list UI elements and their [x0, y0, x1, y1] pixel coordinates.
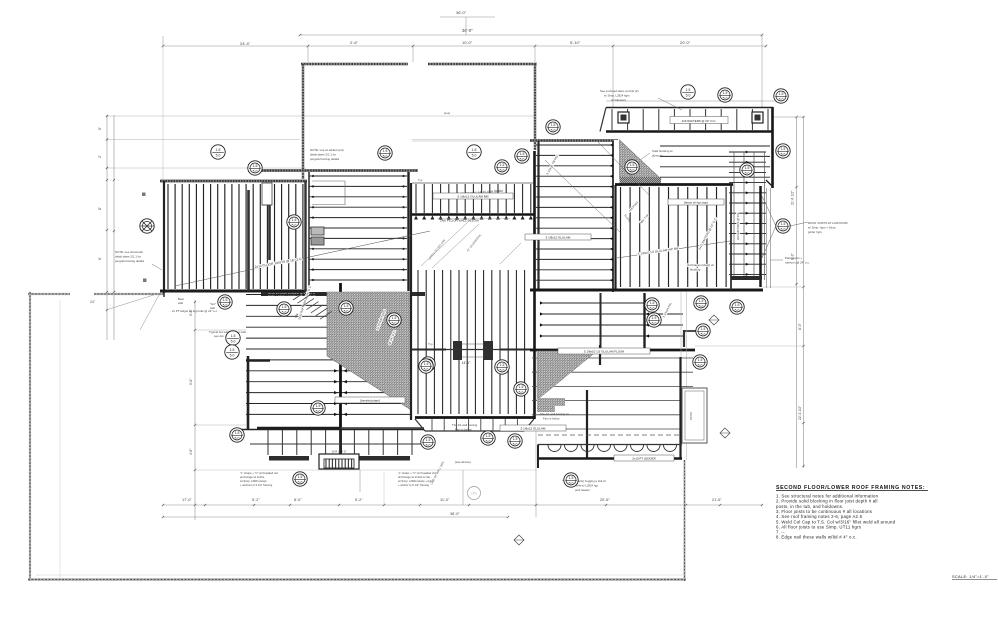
- svg-text:5.0: 5.0: [316, 410, 321, 414]
- svg-text:5.0: 5.0: [513, 443, 518, 447]
- svg-text:5'-10": 5'-10": [570, 40, 581, 45]
- svg-text:5.0: 5.0: [282, 311, 287, 315]
- svg-text:6. All floor joists to use Sim: 6. All floor joists to use Simp. UT11 hg…: [776, 524, 861, 529]
- svg-text:1.5: 1.5: [230, 348, 235, 352]
- svg-text:8': 8': [98, 207, 102, 210]
- svg-text:1.5: 1.5: [701, 327, 706, 331]
- svg-text:1.5: 1.5: [745, 166, 750, 170]
- svg-text:14'-1": 14'-1": [462, 361, 471, 365]
- svg-text:1.5: 1.5: [630, 163, 635, 167]
- svg-text:w/ Simp. L2824 straps + hgrs: w/ Simp. L2824 straps + hgrs: [398, 479, 434, 483]
- svg-text:"L" straps + "C" w/ threaded r: "L" straps + "C" w/ threaded rod: [398, 471, 436, 475]
- svg-text:21'-6 1/2": 21'-6 1/2": [791, 190, 795, 205]
- svg-text:post header: post header: [575, 488, 590, 492]
- svg-text:1.5: 1.5: [551, 123, 556, 127]
- svg-text:1.5: 1.5: [723, 91, 728, 95]
- svg-text:1.5: 1.5: [472, 148, 477, 152]
- svg-text:1.5: 1.5: [223, 298, 228, 302]
- svg-text:+ anchor to 5 1/2" framing: + anchor to 5 1/2" framing: [398, 483, 429, 487]
- svg-text:5 1/8x12 GLULAM: 5 1/8x12 GLULAM: [521, 427, 546, 431]
- svg-text:4'-6": 4'-6": [189, 448, 193, 455]
- svg-text:16 R @ 7.5": 16 R @ 7.5": [331, 450, 346, 454]
- svg-text:24": 24": [90, 300, 96, 304]
- svg-text:5.0: 5.0: [652, 322, 657, 326]
- svg-text:2x6 RAFTERS @ 24" O.C.: 2x6 RAFTERS @ 24" O.C.: [682, 119, 717, 123]
- svg-text:pergola framing details: pergola framing details: [115, 259, 145, 263]
- svg-text:(??): (??): [471, 492, 476, 496]
- svg-text:36'-0": 36'-0": [456, 10, 467, 15]
- svg-text:5.0: 5.0: [698, 364, 703, 368]
- svg-text:5 1/8x12 GLULAM BM: 5 1/8x12 GLULAM BM: [458, 195, 489, 199]
- svg-text:5.0: 5.0: [745, 172, 750, 176]
- svg-text:ROOF JOISTS AT LOW ROOF: ROOF JOISTS AT LOW ROOF: [808, 221, 848, 225]
- svg-text:21'-6": 21'-6": [712, 498, 722, 502]
- svg-text:5.0: 5.0: [520, 158, 525, 162]
- svg-text:5.0: 5.0: [500, 369, 505, 373]
- svg-text:5': 5': [98, 127, 102, 130]
- svg-text:36'-0": 36'-0": [462, 28, 473, 33]
- svg-text:1.5: 1.5: [500, 163, 505, 167]
- svg-text:Fam is below: Fam is below: [543, 417, 560, 421]
- svg-text:1.5: 1.5: [383, 149, 388, 153]
- svg-text:w/ Simp. L2824 hgrs: w/ Simp. L2824 hgrs: [604, 94, 630, 98]
- svg-text:5.0: 5.0: [424, 368, 429, 372]
- svg-text:9'-8": 9'-8": [189, 378, 193, 385]
- svg-text:[beveled plate]: [beveled plate]: [360, 399, 380, 403]
- svg-text:1.5: 1.5: [513, 437, 518, 441]
- svg-text:1.5: 1.5: [235, 431, 240, 435]
- svg-text:NOTE: use w/ added (out): NOTE: use w/ added (out): [310, 148, 344, 152]
- svg-text:w/ Simp. hgrs + Simp.: w/ Simp. hgrs + Simp.: [808, 226, 836, 230]
- svg-text:detail plans 2/1.1 for: detail plans 2/1.1 for: [310, 153, 336, 157]
- svg-text:17'-0": 17'-0": [182, 498, 192, 502]
- svg-text:blocking: blocking: [690, 268, 701, 272]
- svg-text:1.5: 1.5: [650, 301, 655, 305]
- svg-text:Patio doors +: Patio doors +: [785, 256, 802, 260]
- svg-text:5.0: 5.0: [292, 224, 297, 228]
- svg-text:5.0: 5.0: [472, 154, 477, 158]
- svg-text:Typ.: Typ.: [428, 342, 434, 346]
- svg-text:Typ.: Typ.: [418, 178, 423, 182]
- svg-text:5.0: 5.0: [216, 154, 221, 158]
- svg-text:8'-3": 8'-3": [798, 322, 802, 330]
- svg-text:5.0: 5.0: [253, 170, 258, 174]
- svg-text:5.0: 5.0: [519, 391, 524, 395]
- svg-text:10'-0": 10'-0": [462, 40, 473, 45]
- svg-text:1.5: 1.5: [520, 152, 525, 156]
- svg-text:5.0: 5.0: [686, 94, 691, 98]
- svg-text:3x4 braces (shear) w/: 3x4 braces (shear) w/: [687, 263, 714, 267]
- svg-text:24'-4": 24'-4": [240, 41, 251, 46]
- svg-text:1.5: 1.5: [779, 92, 784, 96]
- svg-text:5.0: 5.0: [298, 481, 303, 485]
- svg-text:1.5: 1.5: [292, 218, 297, 222]
- svg-text:anchorage w/ 2x10s w/ det.,: anchorage w/ 2x10s w/ det.,: [398, 475, 432, 479]
- svg-text:5.0: 5.0: [569, 482, 574, 486]
- svg-text:1.5: 1.5: [392, 316, 397, 320]
- svg-text:6': 6': [98, 257, 102, 260]
- svg-text:5.0: 5.0: [781, 228, 786, 232]
- svg-text:5.0: 5.0: [383, 155, 388, 159]
- svg-text:1.5: 1.5: [282, 305, 287, 309]
- svg-text:1.5: 1.5: [253, 164, 258, 168]
- svg-text:1.5: 1.5: [426, 438, 431, 442]
- svg-text:1.5: 1.5: [698, 358, 703, 362]
- svg-text:2': 2': [98, 155, 102, 158]
- svg-text:2x PT ledger w/ leg bolts @ 24: 2x PT ledger w/ leg bolts @ 24" o.c.: [172, 309, 218, 313]
- svg-text:5.0: 5.0: [486, 440, 491, 444]
- svg-text:5.0: 5.0: [235, 437, 240, 441]
- svg-text:2x10 PT LEDGER: 2x10 PT LEDGER: [632, 457, 655, 461]
- svg-text:20'-6": 20'-6": [600, 498, 610, 502]
- svg-text:5.0: 5.0: [701, 333, 706, 337]
- svg-text:5.0: 5.0: [630, 169, 635, 173]
- svg-text:1.5: 1.5: [344, 304, 349, 308]
- svg-text:[beam w/ hgr otyp]: [beam w/ hgr otyp]: [684, 201, 708, 205]
- svg-text:5.0: 5.0: [392, 322, 397, 326]
- svg-text:5.0: 5.0: [426, 444, 431, 448]
- svg-text:[see above]: [see above]: [455, 460, 471, 464]
- svg-text:wall: wall: [178, 301, 183, 305]
- svg-text:5.0: 5.0: [231, 340, 236, 344]
- svg-text:pergola framing details: pergola framing details: [310, 157, 340, 161]
- svg-text:+ anchors to 5 1/2" framing: + anchors to 5 1/2" framing: [240, 483, 273, 487]
- svg-text:[see]: [see]: [444, 111, 450, 115]
- svg-text:transom @ 24" o.c.: transom @ 24" o.c.: [785, 261, 810, 265]
- svg-text:The 2/1 wall framing: The 2/1 wall framing: [452, 423, 478, 427]
- svg-text:1.5: 1.5: [735, 303, 740, 307]
- svg-text:5.0: 5.0: [500, 169, 505, 173]
- svg-text:1.5: 1.5: [781, 147, 786, 151]
- svg-text:5.0: 5.0: [344, 310, 349, 314]
- svg-text:NOTE: use structural/: NOTE: use structural/: [115, 250, 143, 254]
- svg-text:1.5: 1.5: [519, 385, 524, 389]
- svg-text:plywood: plywood: [652, 154, 663, 158]
- svg-text:1.5: 1.5: [686, 88, 691, 92]
- svg-text:w/ Simp. L2824 straps: w/ Simp. L2824 straps: [240, 479, 267, 483]
- svg-text:1.5: 1.5: [424, 362, 429, 366]
- svg-text:4x4s w/ L2824 hgr: 4x4s w/ L2824 hgr: [575, 484, 598, 488]
- svg-text:2ND FLOOR WALL BELOW: 2ND FLOOR WALL BELOW: [440, 219, 479, 223]
- svg-text:1.5: 1.5: [216, 148, 221, 152]
- svg-text:w/ balusters: w/ balusters: [611, 98, 627, 102]
- svg-text:5.0: 5.0: [735, 309, 740, 313]
- svg-text:1.5: 1.5: [298, 475, 303, 479]
- svg-text:22'-3 1/2": 22'-3 1/2": [798, 405, 802, 420]
- svg-text:5.0: 5.0: [650, 307, 655, 311]
- svg-text:Scar(s) hugging a 2x4 w/: Scar(s) hugging a 2x4 w/: [575, 479, 606, 483]
- svg-text:5.0: 5.0: [723, 97, 728, 101]
- svg-text:8. Edge nail these walls w/8d: 8. Edge nail these walls w/8d # 4" o.c.: [776, 535, 857, 540]
- svg-text:5.0: 5.0: [779, 98, 784, 102]
- svg-text:1.5: 1.5: [486, 434, 491, 438]
- svg-text:5.0: 5.0: [699, 305, 704, 309]
- svg-text:girder hgrs: girder hgrs: [808, 230, 822, 234]
- svg-text:PATIO: PATIO: [689, 411, 693, 420]
- svg-text:SCALE: 1/4"=1'-0": SCALE: 1/4"=1'-0": [952, 574, 989, 579]
- svg-text:1.5: 1.5: [316, 404, 321, 408]
- svg-text:The 2/1 wall framing w/: The 2/1 wall framing w/: [540, 412, 569, 416]
- svg-text:Fam is below: Fam is below: [455, 428, 472, 432]
- svg-text:5 1/8x12 GLULAM: 5 1/8x12 GLULAM: [546, 236, 571, 240]
- svg-text:See enclosed plans at 2x4s (2): See enclosed plans at 2x4s (2): [600, 89, 638, 93]
- svg-text:1.5: 1.5: [652, 316, 657, 320]
- svg-text:11'-0": 11'-0": [440, 498, 450, 502]
- svg-text:anchorage w/ 2x10s,: anchorage w/ 2x10s,: [240, 475, 265, 479]
- svg-text:1.5: 1.5: [500, 363, 505, 367]
- svg-text:detail plans 2/1.1 for: detail plans 2/1.1 for: [115, 255, 141, 259]
- svg-text:1.5: 1.5: [699, 299, 704, 303]
- svg-text:36'-0": 36'-0": [450, 512, 460, 516]
- svg-text:2x6 RAFTERS @ 24": 2x6 RAFTERS @ 24": [736, 213, 740, 240]
- svg-text:5.0: 5.0: [223, 304, 228, 308]
- svg-text:5.0: 5.0: [781, 153, 786, 157]
- svg-text:Solid blocking w/: Solid blocking w/: [652, 149, 673, 153]
- svg-text:5'-2": 5'-2": [355, 498, 363, 502]
- svg-text:5 1/8x10 1/2 GLULAM FLUSH: 5 1/8x10 1/2 GLULAM FLUSH: [584, 350, 624, 354]
- svg-text:5'-2": 5'-2": [252, 498, 260, 502]
- svg-text:5.0: 5.0: [230, 354, 235, 358]
- svg-text:5.0: 5.0: [551, 129, 556, 133]
- svg-text:1.5: 1.5: [781, 222, 786, 226]
- svg-text:1.5: 1.5: [231, 334, 236, 338]
- svg-text:8'-0": 8'-0": [294, 498, 302, 502]
- svg-text:1.5: 1.5: [569, 476, 574, 480]
- svg-text:SECOND FLOOR/LOWER ROOF FRAMIN: SECOND FLOOR/LOWER ROOF FRAMING NOTES:: [776, 485, 925, 491]
- svg-text:20'-0": 20'-0": [680, 40, 691, 45]
- svg-text:"L" straps + "C" w/ threaded r: "L" straps + "C" w/ threaded rod: [240, 471, 278, 475]
- svg-text:2'-6": 2'-6": [350, 40, 359, 45]
